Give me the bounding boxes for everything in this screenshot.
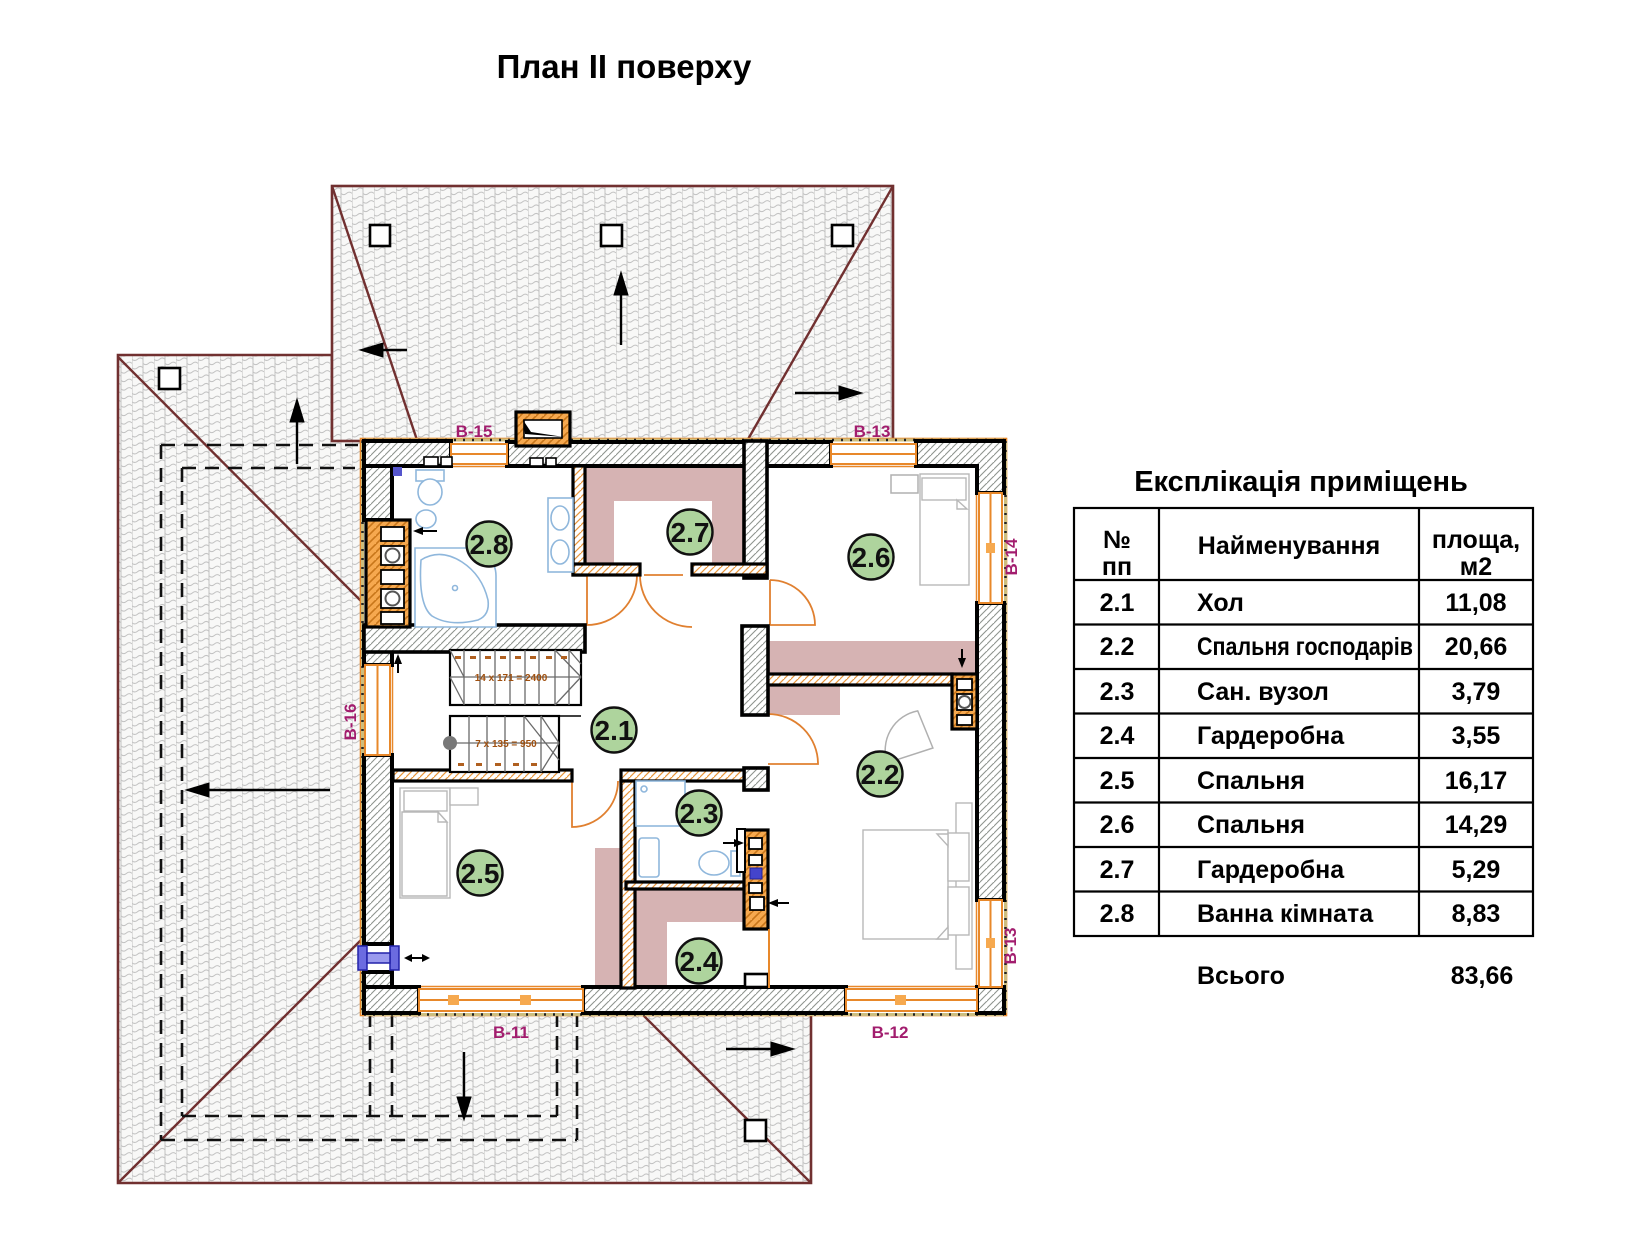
svg-text:2.3: 2.3 <box>680 798 719 829</box>
svg-text:2.5: 2.5 <box>461 858 500 889</box>
svg-text:м2: м2 <box>1460 553 1492 581</box>
svg-text:2.1: 2.1 <box>1100 589 1135 617</box>
svg-text:2.6: 2.6 <box>852 542 891 573</box>
svg-text:Спальня господарів: Спальня господарів <box>1197 633 1413 661</box>
svg-text:2.7: 2.7 <box>671 517 710 548</box>
svg-text:2.2: 2.2 <box>861 759 900 790</box>
svg-text:площа,: площа, <box>1432 526 1520 554</box>
svg-text:2.4: 2.4 <box>680 946 719 977</box>
svg-text:Гардеробна: Гардеробна <box>1197 722 1345 750</box>
svg-text:20,66: 20,66 <box>1445 633 1508 661</box>
svg-text:Експлікація приміщень: Експлікація приміщень <box>1134 466 1468 498</box>
svg-text:Гардеробна: Гардеробна <box>1197 856 1345 884</box>
svg-text:B-11: B-11 <box>493 1023 529 1042</box>
svg-text:2.7: 2.7 <box>1100 856 1135 884</box>
svg-text:Найменування: Найменування <box>1198 532 1380 560</box>
svg-text:7 x 135 = 950: 7 x 135 = 950 <box>475 739 537 750</box>
svg-text:8,83: 8,83 <box>1452 900 1501 928</box>
svg-text:B-13: B-13 <box>1001 928 1020 965</box>
svg-text:83,66: 83,66 <box>1451 962 1514 990</box>
svg-text:План II поверху: План II поверху <box>497 48 752 85</box>
svg-text:3,79: 3,79 <box>1452 678 1501 706</box>
svg-text:B-12: B-12 <box>872 1023 909 1042</box>
svg-text:14,29: 14,29 <box>1445 811 1508 839</box>
svg-text:Всього: Всього <box>1197 962 1285 990</box>
svg-text:2.8: 2.8 <box>1100 900 1135 928</box>
svg-text:Сан. вузол: Сан. вузол <box>1197 678 1329 706</box>
svg-text:16,17: 16,17 <box>1445 767 1508 795</box>
svg-text:Спальня: Спальня <box>1197 811 1305 839</box>
svg-text:2.3: 2.3 <box>1100 678 1135 706</box>
svg-text:B-15: B-15 <box>456 422 493 441</box>
svg-text:Ванна кімната: Ванна кімната <box>1197 900 1374 928</box>
svg-text:B-14: B-14 <box>1002 538 1021 575</box>
svg-text:5,29: 5,29 <box>1452 856 1501 884</box>
svg-text:пп: пп <box>1102 553 1132 581</box>
svg-text:2.2: 2.2 <box>1100 633 1135 661</box>
svg-text:3,55: 3,55 <box>1452 722 1501 750</box>
svg-text:Хол: Хол <box>1197 589 1244 617</box>
svg-text:11,08: 11,08 <box>1445 589 1506 617</box>
svg-text:2.1: 2.1 <box>595 715 634 746</box>
svg-text:2.6: 2.6 <box>1100 811 1135 839</box>
svg-text:2.5: 2.5 <box>1100 767 1135 795</box>
svg-text:2.4: 2.4 <box>1100 722 1135 750</box>
svg-text:14 x 171 = 2400: 14 x 171 = 2400 <box>475 673 548 684</box>
svg-text:2.8: 2.8 <box>470 529 509 560</box>
svg-text:№: № <box>1103 526 1131 554</box>
svg-text:B-16: B-16 <box>341 704 360 741</box>
svg-text:Спальня: Спальня <box>1197 767 1305 795</box>
svg-text:B-13: B-13 <box>854 422 891 441</box>
